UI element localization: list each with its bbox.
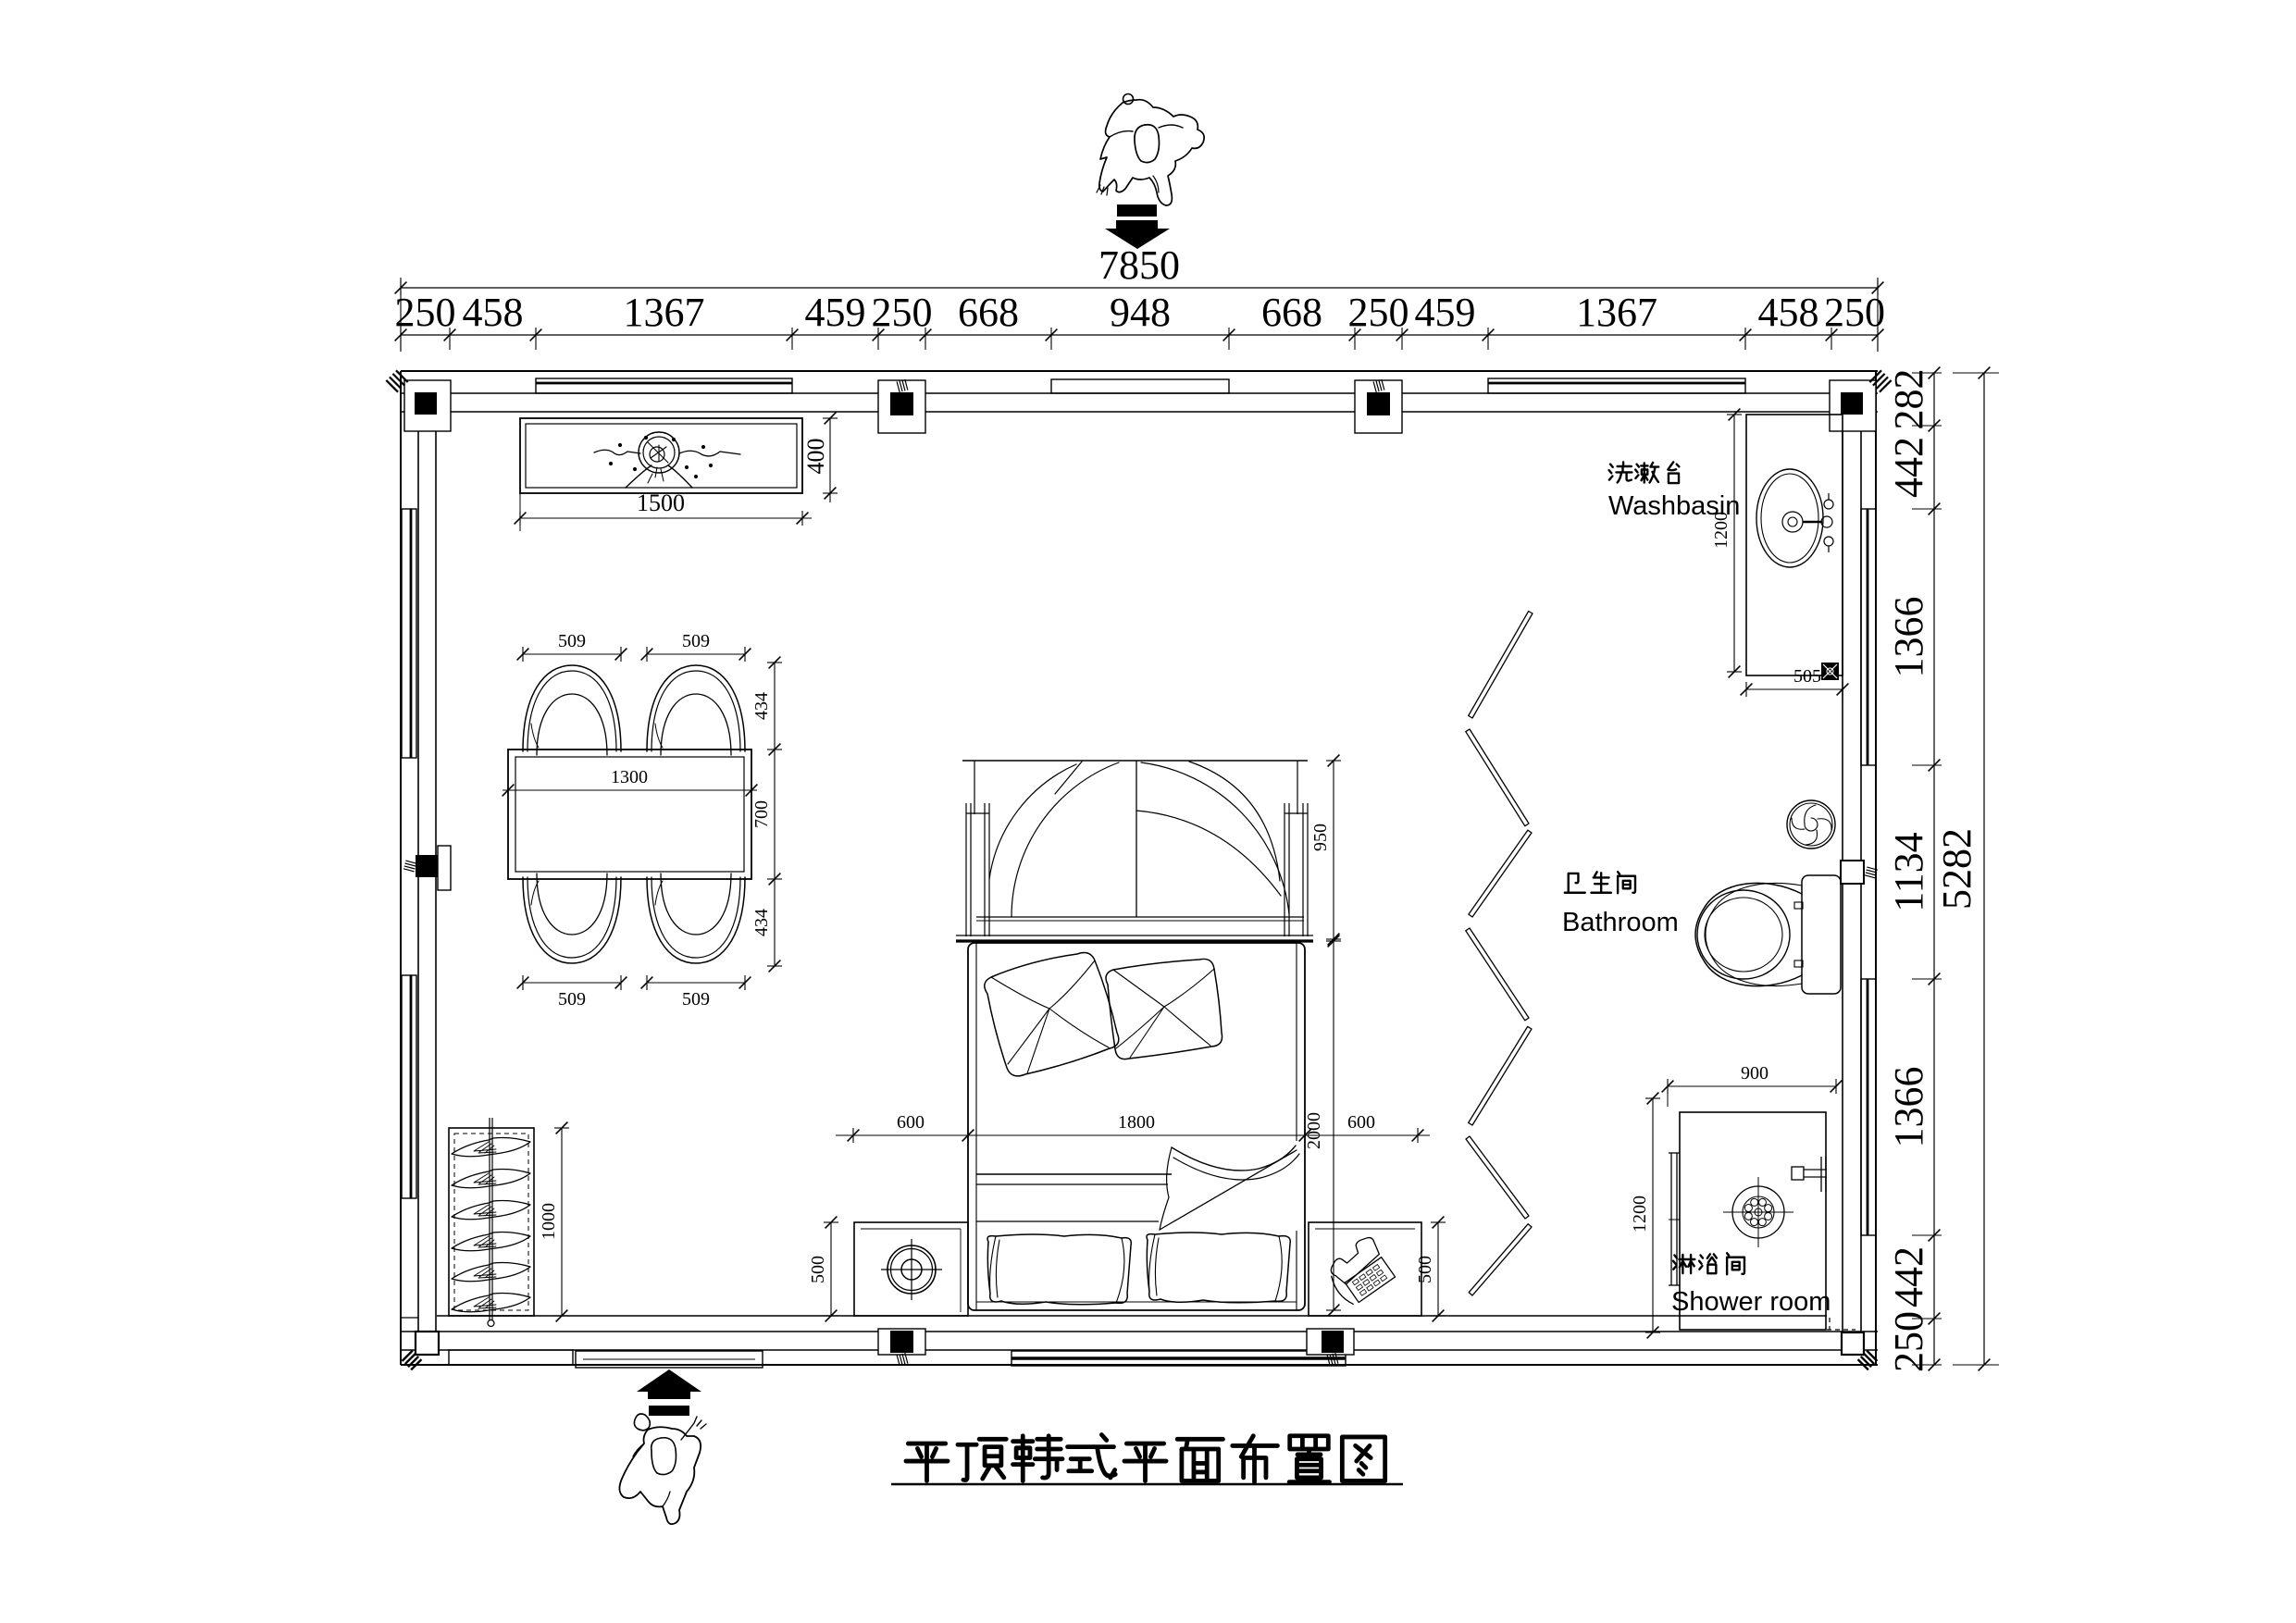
svg-text:1367: 1367 xyxy=(1576,290,1657,335)
svg-text:668: 668 xyxy=(958,290,1019,335)
svg-text:1366: 1366 xyxy=(1886,1067,1931,1148)
svg-text:250: 250 xyxy=(1824,290,1885,335)
svg-text:459: 459 xyxy=(1415,290,1476,335)
svg-text:458: 458 xyxy=(1758,290,1819,335)
svg-text:Shower room: Shower room xyxy=(1671,1287,1831,1317)
svg-text:950: 950 xyxy=(1310,824,1331,851)
svg-text:700: 700 xyxy=(751,800,772,828)
svg-text:1366: 1366 xyxy=(1886,597,1931,678)
svg-text:2000: 2000 xyxy=(1304,1112,1324,1149)
svg-text:458: 458 xyxy=(463,290,524,335)
svg-text:509: 509 xyxy=(682,631,710,651)
svg-text:5282: 5282 xyxy=(1934,828,1980,910)
svg-text:1000: 1000 xyxy=(539,1203,559,1240)
svg-text:442: 442 xyxy=(1886,1246,1931,1307)
svg-text:500: 500 xyxy=(808,1256,828,1283)
svg-text:1134: 1134 xyxy=(1886,832,1931,911)
svg-text:250: 250 xyxy=(872,290,933,335)
svg-text:1367: 1367 xyxy=(624,290,705,335)
svg-text:600: 600 xyxy=(1347,1112,1375,1133)
svg-text:250: 250 xyxy=(1348,290,1409,335)
svg-text:282: 282 xyxy=(1886,369,1931,430)
svg-text:505: 505 xyxy=(1793,666,1821,687)
svg-text:509: 509 xyxy=(558,631,586,651)
svg-text:509: 509 xyxy=(558,989,586,1010)
svg-text:509: 509 xyxy=(682,989,710,1010)
svg-text:459: 459 xyxy=(805,290,866,335)
svg-text:1200: 1200 xyxy=(1630,1196,1650,1233)
svg-text:250: 250 xyxy=(1886,1311,1931,1372)
svg-text:500: 500 xyxy=(1415,1256,1435,1283)
svg-text:7850: 7850 xyxy=(1098,242,1180,288)
svg-text:1500: 1500 xyxy=(637,489,685,516)
svg-text:434: 434 xyxy=(751,909,772,936)
svg-text:668: 668 xyxy=(1261,290,1322,335)
svg-text:442: 442 xyxy=(1886,437,1931,498)
svg-text:400: 400 xyxy=(802,439,829,475)
svg-text:Bathroom: Bathroom xyxy=(1562,908,1679,937)
svg-text:1800: 1800 xyxy=(1118,1112,1155,1133)
svg-text:434: 434 xyxy=(751,692,772,720)
svg-text:250: 250 xyxy=(395,290,456,335)
svg-text:Washbasin: Washbasin xyxy=(1608,491,1740,521)
svg-text:900: 900 xyxy=(1741,1063,1769,1084)
svg-text:948: 948 xyxy=(1110,290,1171,335)
svg-text:1300: 1300 xyxy=(611,767,648,787)
svg-text:600: 600 xyxy=(897,1112,925,1133)
